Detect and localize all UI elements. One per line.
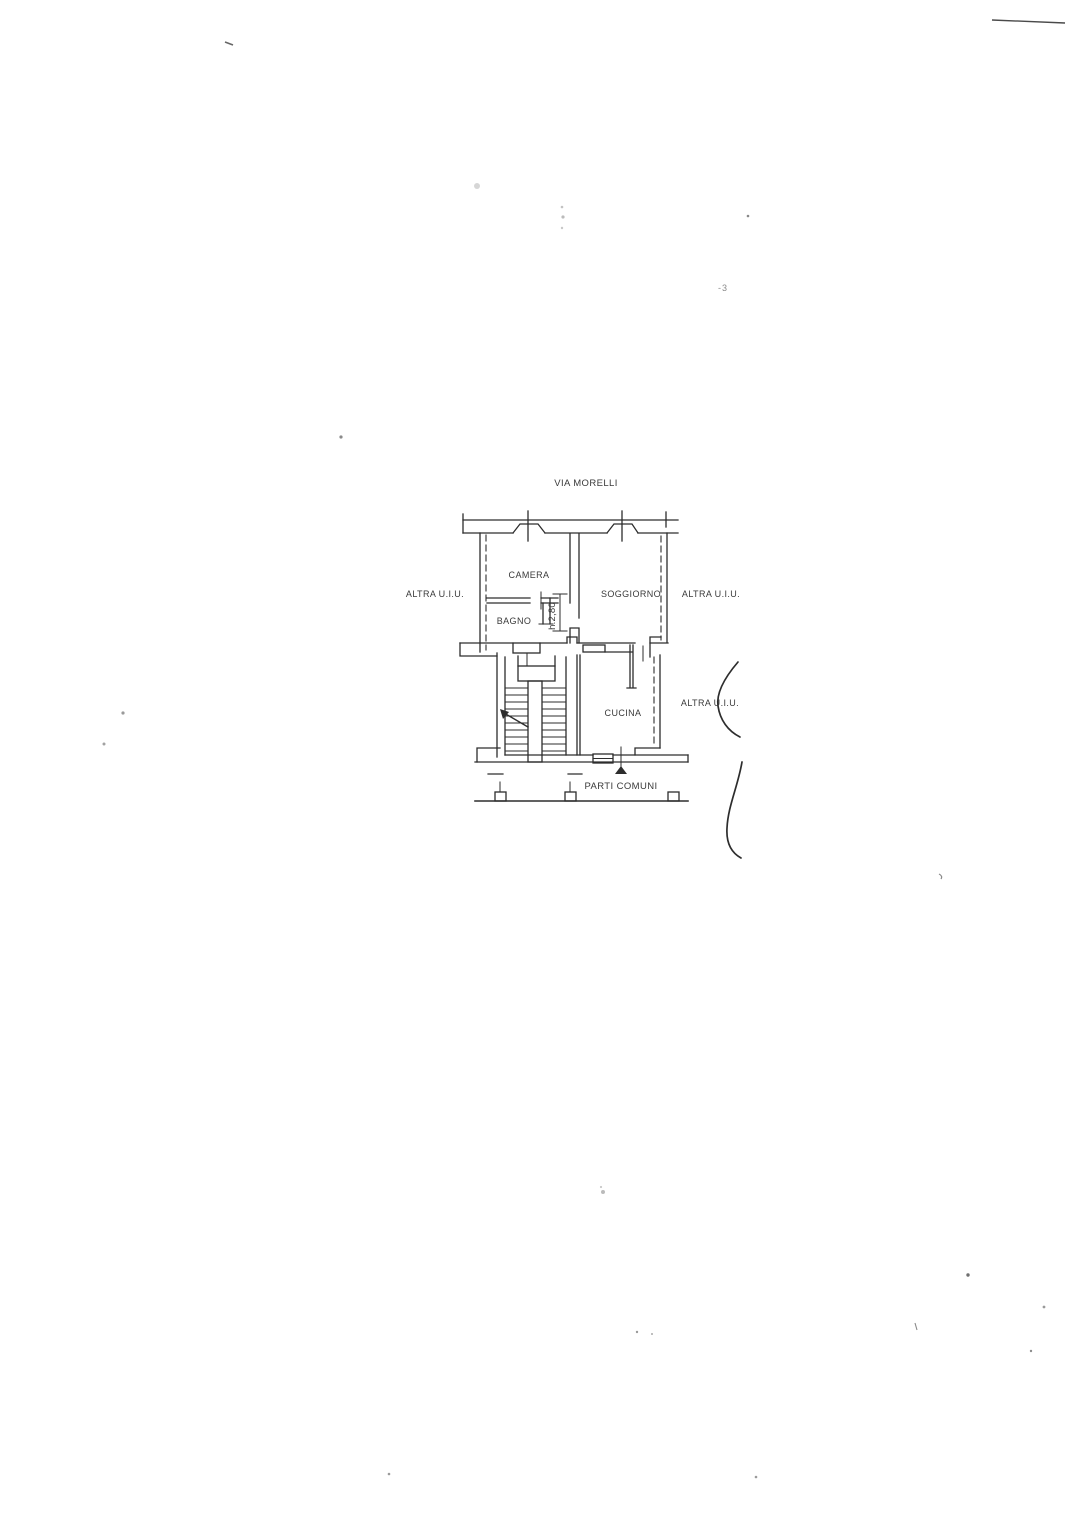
scan-speck — [747, 215, 750, 218]
entry-door-mark — [615, 766, 627, 774]
handwritten-mark: -3 — [718, 283, 728, 293]
adjacent-unit-label-right-middle: ALTRA U.I.U. — [681, 698, 739, 708]
scan-noise — [103, 20, 1066, 1478]
room-label-soggiorno: SOGGIORNO — [601, 589, 661, 599]
room-label-bagno: BAGNO — [497, 616, 532, 626]
adjacent-unit-label-right-top: ALTRA U.I.U. — [682, 589, 740, 599]
courtyard-band-wall — [460, 637, 668, 666]
band-window-1 — [513, 643, 540, 653]
common-parts-label: PARTI COMUNI — [584, 781, 657, 792]
stairwell — [497, 653, 566, 762]
scan-speck — [1030, 1350, 1032, 1352]
camera-soggiorno-wall — [570, 534, 579, 643]
scan-speck — [388, 1473, 391, 1476]
street-label: VIA MORELLI — [554, 478, 618, 489]
scan-line-top-right — [992, 20, 1065, 23]
scan-speck — [1043, 1306, 1046, 1309]
scan-speck — [651, 1333, 653, 1335]
room-label-camera: CAMERA — [509, 570, 550, 580]
height-dimension-label: h.2,80 — [547, 602, 558, 630]
right-party-wall-upper — [661, 533, 667, 642]
scan-speck — [225, 42, 233, 45]
adjacent-unit-label-left: ALTRA U.I.U. — [406, 589, 464, 599]
fence-post-3 — [668, 792, 679, 801]
left-party-wall — [480, 533, 486, 652]
stair-newel — [528, 681, 542, 762]
scanned-floorplan-page: VIA MORELLI ALTRA U.I.U. CAMERA SOGGIORN… — [0, 0, 1086, 1536]
floorplan-drawing: VIA MORELLI ALTRA U.I.U. CAMERA SOGGIORN… — [0, 0, 1086, 1536]
scan-speck — [601, 1190, 605, 1194]
scan-speck — [561, 215, 564, 218]
scan-speck — [939, 874, 942, 879]
cucina-walls — [577, 645, 660, 755]
flue-protrusion — [567, 637, 577, 643]
scan-speck — [636, 1331, 638, 1333]
pen-stroke-curves — [718, 662, 742, 858]
scan-speck — [755, 1476, 758, 1479]
scan-speck — [561, 227, 563, 229]
pen-curve-lower — [727, 762, 742, 858]
scan-speck — [561, 206, 564, 209]
scan-speck — [915, 1323, 917, 1330]
stair-treads-right — [542, 688, 566, 751]
window-reveal-1 — [513, 524, 545, 533]
scan-speck — [103, 743, 106, 746]
fence-post-2 — [565, 792, 576, 801]
scan-speck — [339, 435, 342, 438]
scan-speck — [600, 1186, 602, 1188]
scan-speck — [121, 711, 124, 714]
fence-post-1 — [495, 792, 506, 801]
band-window-2 — [583, 645, 605, 652]
stair-landing — [518, 666, 555, 681]
plan-linework — [460, 511, 742, 858]
scan-speck — [966, 1273, 969, 1276]
room-label-cucina: CUCINA — [605, 708, 642, 718]
scan-speck — [474, 183, 480, 189]
stair-direction-arrow — [504, 713, 528, 727]
